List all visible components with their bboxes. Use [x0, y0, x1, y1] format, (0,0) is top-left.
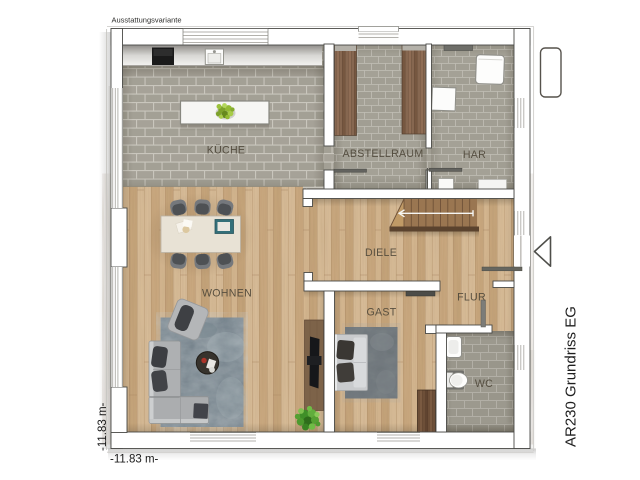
- svg-text:-11.83 m-: -11.83 m-: [97, 402, 109, 451]
- svg-text:AR230 Grundriss EG: AR230 Grundriss EG: [563, 306, 580, 447]
- svg-text:Ausstattungsvariante: Ausstattungsvariante: [112, 16, 182, 25]
- svg-text:WC: WC: [475, 378, 493, 390]
- svg-text:-11.83 m-: -11.83 m-: [110, 454, 159, 466]
- svg-text:WOHNEN: WOHNEN: [202, 288, 252, 300]
- svg-text:HAR: HAR: [463, 149, 486, 161]
- svg-text:DIELE: DIELE: [365, 247, 397, 259]
- svg-text:ABSTELLRAUM: ABSTELLRAUM: [342, 148, 423, 160]
- svg-text:GAST: GAST: [366, 307, 396, 319]
- svg-text:FLUR: FLUR: [457, 292, 486, 304]
- svg-text:KÜCHE: KÜCHE: [207, 145, 246, 157]
